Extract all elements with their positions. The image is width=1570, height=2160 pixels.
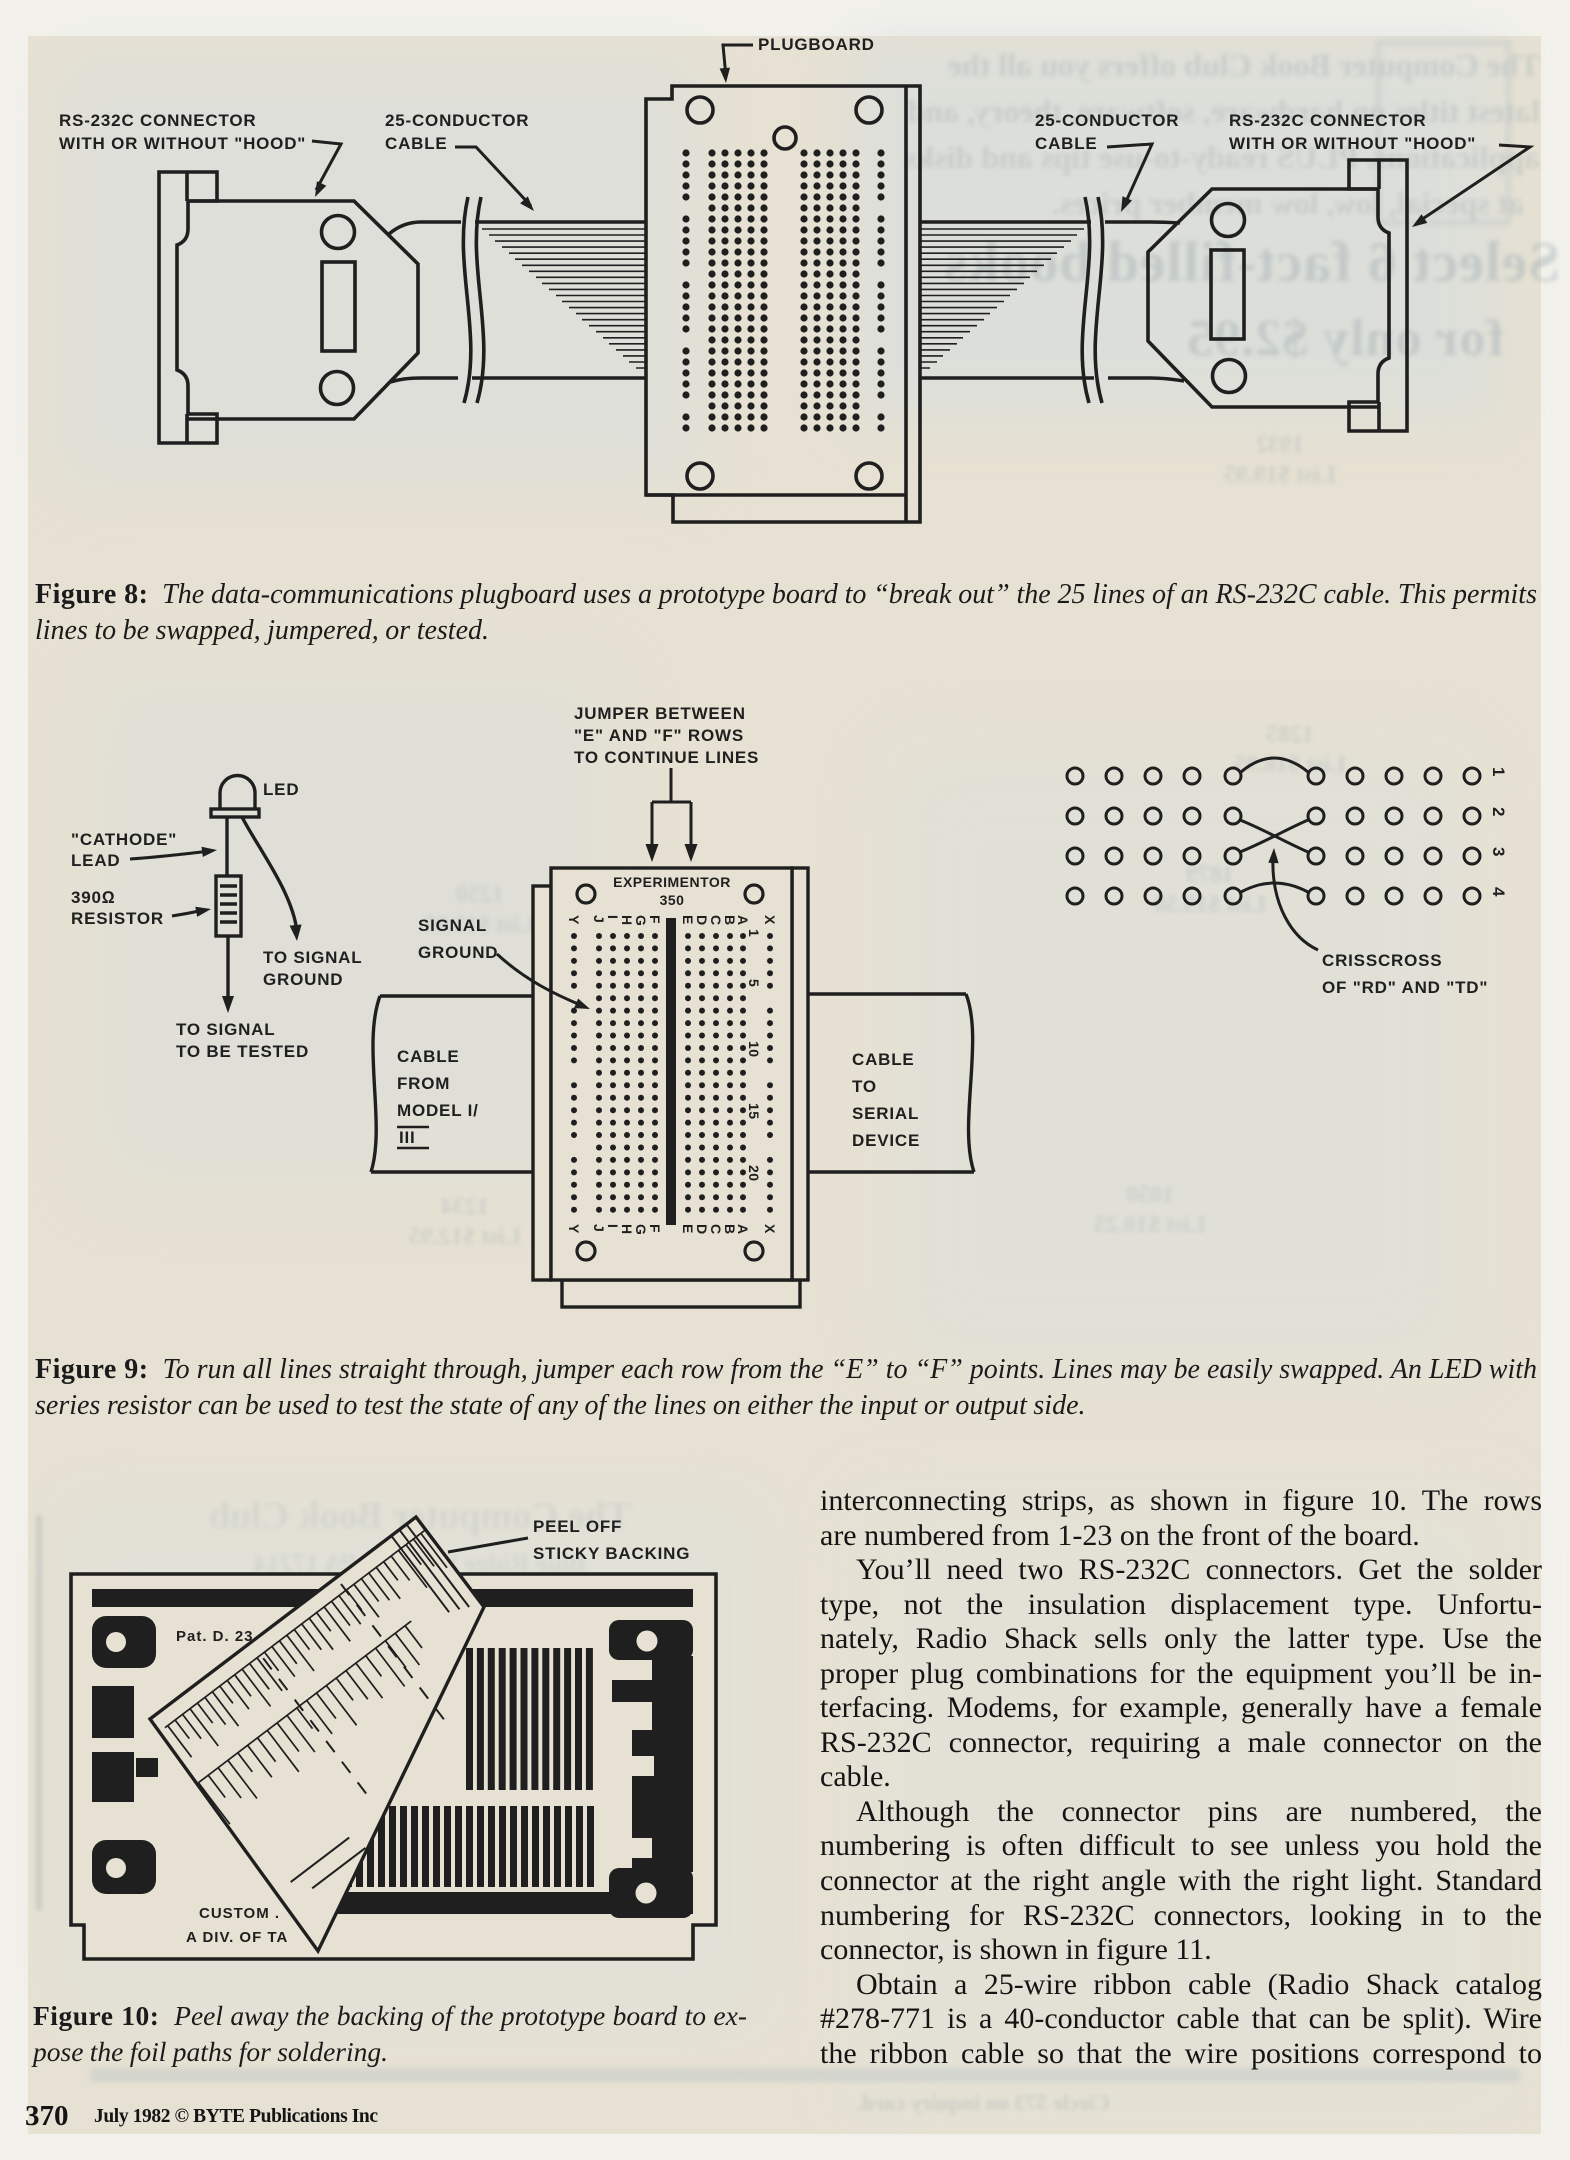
svg-text:RS-232C CONNECTOR: RS-232C CONNECTOR <box>59 111 257 130</box>
svg-text:D: D <box>694 915 710 926</box>
svg-text:RS-232C CONNECTOR: RS-232C CONNECTOR <box>1229 111 1427 130</box>
svg-text:D: D <box>694 1224 710 1235</box>
svg-text:C: C <box>708 915 724 926</box>
svg-text:Pat. D. 23: Pat. D. 23 <box>176 1628 254 1645</box>
svg-text:X: X <box>762 1224 778 1234</box>
svg-text:3: 3 <box>1489 847 1508 857</box>
svg-text:DEVICE: DEVICE <box>852 1131 920 1150</box>
svg-text:20: 20 <box>746 1165 762 1182</box>
svg-text:PLUGBOARD: PLUGBOARD <box>758 35 875 54</box>
svg-text:TO CONTINUE LINES: TO CONTINUE LINES <box>574 748 759 767</box>
svg-text:H: H <box>619 1224 635 1235</box>
svg-text:GROUND: GROUND <box>263 970 343 989</box>
svg-text:E: E <box>680 1224 696 1234</box>
svg-text:15: 15 <box>746 1103 762 1120</box>
svg-text:TO SIGNAL: TO SIGNAL <box>176 1020 275 1039</box>
svg-text:STICKY BACKING: STICKY BACKING <box>533 1544 690 1563</box>
svg-text:SERIAL: SERIAL <box>852 1104 919 1123</box>
svg-text:WITH OR WITHOUT "HOOD": WITH OR WITHOUT "HOOD" <box>1229 134 1476 153</box>
svg-text:CABLE: CABLE <box>852 1050 915 1069</box>
svg-text:G: G <box>633 1224 649 1235</box>
svg-text:CABLE: CABLE <box>1035 134 1098 153</box>
svg-text:CRISSCROSS: CRISSCROSS <box>1322 951 1442 970</box>
svg-text:5: 5 <box>746 979 762 987</box>
svg-text:J: J <box>591 915 607 923</box>
svg-text:"E" AND "F" ROWS: "E" AND "F" ROWS <box>574 726 744 745</box>
svg-text:I: I <box>605 1224 621 1228</box>
svg-text:H: H <box>619 915 635 926</box>
svg-text:Y: Y <box>566 915 582 925</box>
svg-text:"CATHODE": "CATHODE" <box>71 830 177 849</box>
svg-text:F: F <box>647 1224 663 1233</box>
svg-text:G: G <box>633 915 649 926</box>
svg-text:RESISTOR: RESISTOR <box>71 909 164 928</box>
svg-text:I: I <box>605 915 621 919</box>
svg-text:Y: Y <box>566 1224 582 1234</box>
svg-text:MODEL I/: MODEL I/ <box>397 1101 479 1120</box>
svg-text:SIGNAL: SIGNAL <box>418 916 487 935</box>
svg-text:WITH OR WITHOUT "HOOD": WITH OR WITHOUT "HOOD" <box>59 134 306 153</box>
svg-text:GROUND: GROUND <box>418 943 498 962</box>
svg-text:F: F <box>647 915 663 924</box>
svg-text:A DIV. OF TA: A DIV. OF TA <box>186 1929 288 1946</box>
svg-text:E: E <box>680 915 696 925</box>
svg-text:PEEL OFF: PEEL OFF <box>533 1517 622 1536</box>
svg-text:TO: TO <box>852 1077 877 1096</box>
svg-text:A: A <box>735 1224 751 1235</box>
svg-text:CABLE: CABLE <box>385 134 448 153</box>
svg-text:4: 4 <box>1489 887 1508 897</box>
svg-text:1: 1 <box>1489 767 1508 777</box>
svg-text:X: X <box>762 915 778 925</box>
svg-text:CABLE: CABLE <box>397 1047 460 1066</box>
svg-text:TO BE TESTED: TO BE TESTED <box>176 1042 309 1061</box>
svg-text:A: A <box>735 915 751 926</box>
svg-text:1: 1 <box>746 929 762 937</box>
svg-text:JUMPER BETWEEN: JUMPER BETWEEN <box>574 704 746 723</box>
svg-text:FROM: FROM <box>397 1074 450 1093</box>
svg-text:2: 2 <box>1489 807 1508 817</box>
svg-text:390Ω: 390Ω <box>71 888 116 907</box>
svg-text:CUSTOM .: CUSTOM . <box>199 1905 280 1922</box>
svg-text:LEAD: LEAD <box>71 851 120 870</box>
svg-text:TO SIGNAL: TO SIGNAL <box>263 948 362 967</box>
svg-text:25-CONDUCTOR: 25-CONDUCTOR <box>1035 111 1179 130</box>
svg-text:10: 10 <box>746 1041 762 1058</box>
svg-text:EXPERIMENTOR: EXPERIMENTOR <box>613 874 731 890</box>
svg-text:J: J <box>591 1224 607 1232</box>
svg-text:C: C <box>708 1224 724 1235</box>
svg-text:LED: LED <box>263 780 299 799</box>
svg-text:350: 350 <box>660 892 685 908</box>
svg-text:25-CONDUCTOR: 25-CONDUCTOR <box>385 111 529 130</box>
svg-text:OF "RD" AND "TD": OF "RD" AND "TD" <box>1322 978 1488 997</box>
svg-text:III: III <box>399 1128 416 1147</box>
